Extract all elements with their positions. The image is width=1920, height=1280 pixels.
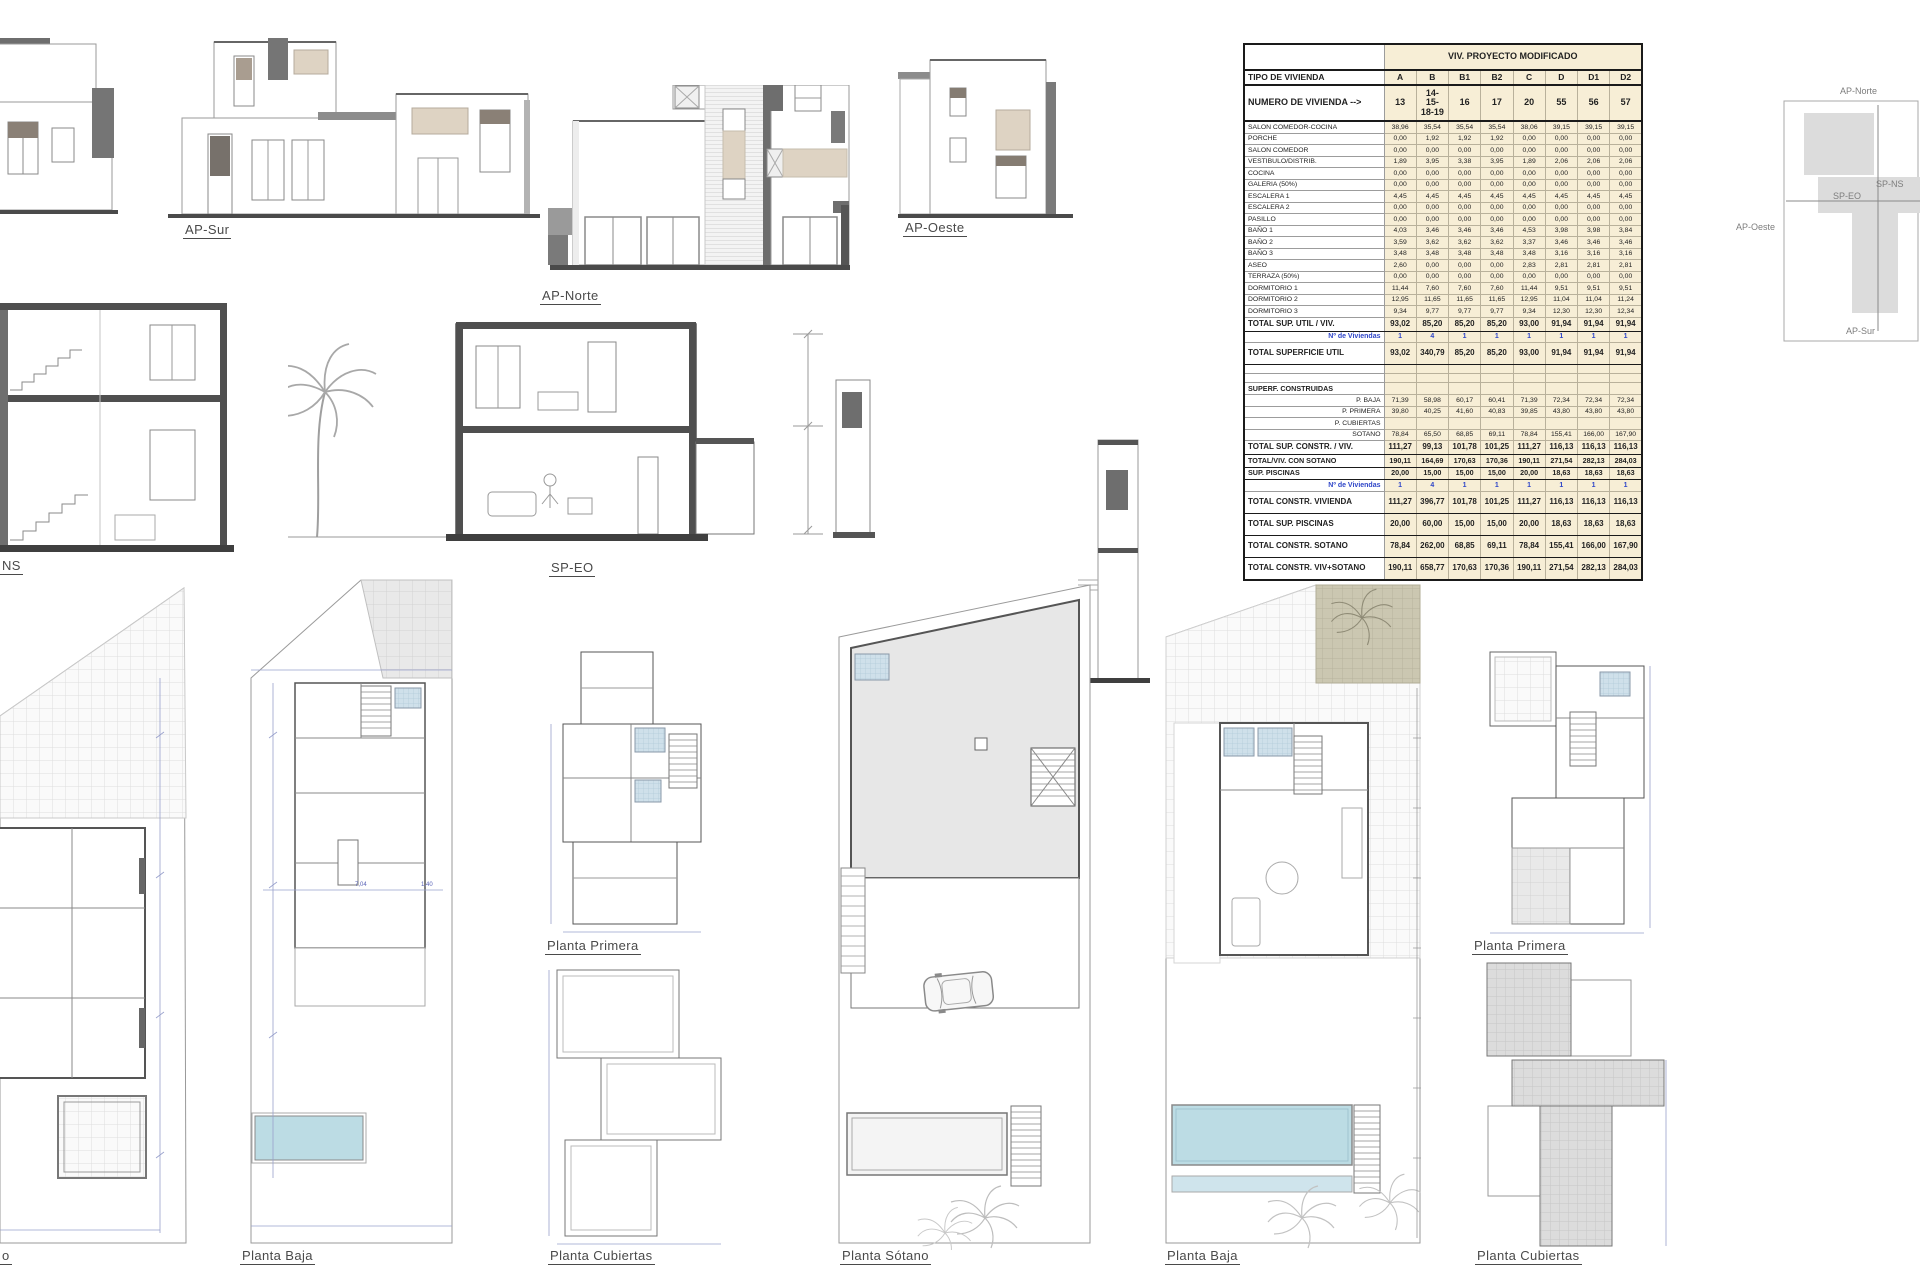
cell-value: 0,00 bbox=[1384, 271, 1416, 283]
cell-value: 3,48 bbox=[1513, 248, 1545, 260]
plan-planta-baja-left-drawing: 7,04 1,40 bbox=[243, 578, 458, 1250]
cell-value: 65,50 bbox=[1416, 429, 1448, 441]
stair bbox=[669, 734, 697, 788]
cell-value: 101,25 bbox=[1481, 491, 1513, 513]
cell-value: 3,16 bbox=[1578, 248, 1610, 260]
cell-value: 0,00 bbox=[1416, 260, 1448, 272]
plan-planta-cubiertas-right-drawing bbox=[1478, 960, 1670, 1248]
cell-value: 170,63 bbox=[1449, 557, 1481, 580]
row-label: TOTAL/VIV. CON SOTANO bbox=[1244, 455, 1384, 468]
cell-value: 4,45 bbox=[1545, 191, 1577, 203]
plan-planta-baja-right-label: Planta Baja bbox=[1165, 1248, 1240, 1265]
cell-value: 35,54 bbox=[1481, 121, 1513, 133]
cell-value bbox=[1610, 383, 1642, 395]
cell-value: 72,34 bbox=[1545, 395, 1577, 407]
table-row: PORCHE0,001,921,921,920,000,000,000,00 bbox=[1244, 133, 1642, 145]
cell-value bbox=[1610, 374, 1642, 383]
cell-value: 167,90 bbox=[1610, 429, 1642, 441]
cell-value: 9,77 bbox=[1449, 306, 1481, 318]
cell-value: 284,03 bbox=[1610, 557, 1642, 580]
cell-value: 3,48 bbox=[1481, 248, 1513, 260]
row-label: TOTAL SUP. PISCINAS bbox=[1244, 513, 1384, 535]
cell-value: 4 bbox=[1416, 331, 1448, 343]
cell-value bbox=[1513, 374, 1545, 383]
cell-value: 0,00 bbox=[1481, 271, 1513, 283]
cell-value: 93,02 bbox=[1384, 343, 1416, 365]
bathroom bbox=[1258, 728, 1292, 756]
cell-value: 0,00 bbox=[1384, 168, 1416, 180]
table-row: TOTAL SUP. UTIL / VIV.93,0285,2085,2085,… bbox=[1244, 317, 1642, 331]
cell-value: 18,63 bbox=[1545, 513, 1577, 535]
cell-value: 72,34 bbox=[1610, 395, 1642, 407]
plan-partial-left-drawing bbox=[0, 578, 192, 1250]
cell-value: 0,00 bbox=[1416, 214, 1448, 226]
cell-value: 1 bbox=[1513, 480, 1545, 492]
kitchen-island bbox=[338, 840, 358, 885]
ramp bbox=[841, 868, 865, 973]
cell-value: 0,00 bbox=[1449, 214, 1481, 226]
cell-value: 2,81 bbox=[1578, 260, 1610, 272]
cell-value: 111,27 bbox=[1513, 441, 1545, 455]
row-label: TOTAL CONSTR. VIVIENDA bbox=[1244, 491, 1384, 513]
section-sp-ns-drawing bbox=[0, 295, 238, 563]
row-label: GALERIA (50%) bbox=[1244, 179, 1384, 191]
cell-value: 85,20 bbox=[1481, 317, 1513, 331]
cell-value: 116,13 bbox=[1610, 491, 1642, 513]
cell-value: 93,02 bbox=[1384, 317, 1416, 331]
cell-value: 4,45 bbox=[1610, 191, 1642, 203]
cell-value: 190,11 bbox=[1513, 455, 1545, 468]
row-label: DORMITORIO 1 bbox=[1244, 283, 1384, 295]
cell-value: 0,00 bbox=[1545, 202, 1577, 214]
row-label: P. PRIMERA bbox=[1244, 406, 1384, 418]
cell-value: 340,79 bbox=[1416, 343, 1448, 365]
table-row: Nº de Viviendas14111111 bbox=[1244, 480, 1642, 492]
cell-value: 658,77 bbox=[1416, 557, 1448, 580]
cell-value: C bbox=[1513, 70, 1545, 85]
cell-value bbox=[1545, 418, 1577, 430]
plan-planta-sotano-drawing bbox=[835, 578, 1097, 1250]
cell-value: 116,13 bbox=[1545, 491, 1577, 513]
cell-value: 78,84 bbox=[1384, 429, 1416, 441]
cell-value: 111,27 bbox=[1513, 491, 1545, 513]
stair bbox=[1354, 1105, 1380, 1193]
cell-value: 0,00 bbox=[1513, 145, 1545, 157]
cell-value bbox=[1481, 383, 1513, 395]
cell-value: 0,00 bbox=[1384, 202, 1416, 214]
cell-value: 3,62 bbox=[1416, 237, 1448, 249]
cell-value: 1 bbox=[1481, 331, 1513, 343]
cell-value: 116,13 bbox=[1578, 491, 1610, 513]
cell-value bbox=[1481, 418, 1513, 430]
cell-value: 69,11 bbox=[1481, 535, 1513, 557]
row-label: TOTAL SUP. UTIL / VIV. bbox=[1244, 317, 1384, 331]
elevation-partial-left-drawing bbox=[0, 38, 140, 216]
cell-value: 3,95 bbox=[1481, 156, 1513, 168]
cell-value: 0,00 bbox=[1384, 133, 1416, 145]
row-label: COCINA bbox=[1244, 168, 1384, 180]
cell-value: 99,13 bbox=[1416, 441, 1448, 455]
cell-value: 1 bbox=[1578, 331, 1610, 343]
cell-value: 91,94 bbox=[1610, 317, 1642, 331]
cell-value: 3,95 bbox=[1416, 156, 1448, 168]
cell-value: 15,00 bbox=[1449, 513, 1481, 535]
cell-value: 39,15 bbox=[1545, 121, 1577, 133]
row-label: BAÑO 1 bbox=[1244, 225, 1384, 237]
dimension-line bbox=[793, 330, 823, 534]
cell-value: 12,34 bbox=[1610, 306, 1642, 318]
table-row: TOTAL CONSTR. VIV+SOTANO190,11658,77170,… bbox=[1244, 557, 1642, 580]
table-title: VIV. PROYECTO MODIFICADO bbox=[1384, 44, 1642, 70]
bathroom bbox=[1224, 728, 1254, 756]
cell-value: 55 bbox=[1545, 85, 1577, 121]
table-row: COCINA0,000,000,000,000,000,000,000,00 bbox=[1244, 168, 1642, 180]
summary-table: VIV. PROYECTO MODIFICADOTIPO DE VIVIENDA… bbox=[1243, 43, 1643, 581]
stair bbox=[1011, 1106, 1041, 1186]
cell-value: 60,41 bbox=[1481, 395, 1513, 407]
row-label: BAÑO 3 bbox=[1244, 248, 1384, 260]
cell-value: 0,00 bbox=[1578, 145, 1610, 157]
table-row bbox=[1244, 374, 1642, 383]
table-row: SUP. PISCINAS20,0015,0015,0015,0020,0018… bbox=[1244, 467, 1642, 480]
cell-value: 7,60 bbox=[1416, 283, 1448, 295]
section-sp-eo-drawing bbox=[288, 322, 888, 564]
cell-value: 35,54 bbox=[1449, 121, 1481, 133]
cell-value: 39,85 bbox=[1513, 406, 1545, 418]
cell-value: 1 bbox=[1449, 480, 1481, 492]
table-row: TOTAL SUPERFICIE UTIL93,02340,7985,2085,… bbox=[1244, 343, 1642, 365]
plan-planta-primera-left-drawing bbox=[543, 648, 721, 938]
table-row: TOTAL/VIV. CON SOTANO190,11164,69170,631… bbox=[1244, 455, 1642, 468]
table-row: TIPO DE VIVIENDAABB1B2CDD1D2 bbox=[1244, 70, 1642, 85]
table-row: SALON COMEDOR0,000,000,000,000,000,000,0… bbox=[1244, 145, 1642, 157]
cell-value: 164,69 bbox=[1416, 455, 1448, 468]
table-row: VIV. PROYECTO MODIFICADO bbox=[1244, 44, 1642, 70]
cell-value: 7,60 bbox=[1481, 283, 1513, 295]
cell-value: 111,27 bbox=[1384, 491, 1416, 513]
cell-value: 68,85 bbox=[1449, 429, 1481, 441]
cell-value: 4,45 bbox=[1578, 191, 1610, 203]
cell-value: 0,00 bbox=[1481, 202, 1513, 214]
cell-value bbox=[1416, 374, 1448, 383]
table-row bbox=[1244, 365, 1642, 374]
key-plan-south-label: AP-Sur bbox=[1846, 326, 1875, 336]
cell-value: 0,00 bbox=[1481, 145, 1513, 157]
cell-value: 20,00 bbox=[1384, 467, 1416, 480]
cell-value: D2 bbox=[1610, 70, 1642, 85]
cell-value: 3,84 bbox=[1610, 225, 1642, 237]
table-row: TOTAL SUP. PISCINAS20,0060,0015,0015,002… bbox=[1244, 513, 1642, 535]
section-sp-eo-label: SP-EO bbox=[549, 560, 595, 577]
cell-value bbox=[1578, 418, 1610, 430]
cell-value: 1 bbox=[1384, 331, 1416, 343]
cell-value: 20 bbox=[1513, 85, 1545, 121]
cell-value: D1 bbox=[1578, 70, 1610, 85]
plan-planta-cubiertas-left-drawing bbox=[543, 960, 733, 1248]
cell-value: 17 bbox=[1481, 85, 1513, 121]
cell-value: 18,63 bbox=[1610, 467, 1642, 480]
cell-value: 4,03 bbox=[1384, 225, 1416, 237]
stair bbox=[1570, 712, 1596, 766]
garden-area bbox=[1316, 585, 1420, 683]
cell-value: 3,48 bbox=[1384, 248, 1416, 260]
row-label: ESCALERA 1 bbox=[1244, 191, 1384, 203]
row-label bbox=[1244, 374, 1384, 383]
row-label: TOTAL CONSTR. SOTANO bbox=[1244, 535, 1384, 557]
cell-value: 284,03 bbox=[1610, 455, 1642, 468]
cell-value: 0,00 bbox=[1513, 214, 1545, 226]
table-row: SOTANO78,8465,5068,8569,1178,84155,41166… bbox=[1244, 429, 1642, 441]
cell-value: 3,62 bbox=[1481, 237, 1513, 249]
row-label: VESTIBULO/DISTRIB. bbox=[1244, 156, 1384, 168]
cell-value bbox=[1578, 383, 1610, 395]
drawing-sheet: AP-Sur AP-Norte bbox=[0, 0, 1920, 1280]
cell-value: 43,80 bbox=[1610, 406, 1642, 418]
table-row: TOTAL CONSTR. VIVIENDA111,27396,77101,78… bbox=[1244, 491, 1642, 513]
cell-value: 0,00 bbox=[1449, 260, 1481, 272]
table-row: NUMERO DE VIVIENDA -->1314-15-18-1916172… bbox=[1244, 85, 1642, 121]
cell-value: 71,39 bbox=[1384, 395, 1416, 407]
key-plan-section-eo-label: SP-EO bbox=[1833, 191, 1861, 201]
cell-value: 40,83 bbox=[1481, 406, 1513, 418]
cell-value: 0,00 bbox=[1578, 271, 1610, 283]
cell-value: 3,62 bbox=[1449, 237, 1481, 249]
row-label: BAÑO 2 bbox=[1244, 237, 1384, 249]
cell-value: 2,60 bbox=[1384, 260, 1416, 272]
cell-value: 15,00 bbox=[1481, 513, 1513, 535]
cell-value: 4,45 bbox=[1513, 191, 1545, 203]
cell-value: 18,63 bbox=[1610, 513, 1642, 535]
table-row: VESTIBULO/DISTRIB.1,893,953,383,951,892,… bbox=[1244, 156, 1642, 168]
row-label: PASILLO bbox=[1244, 214, 1384, 226]
cell-value: 101,78 bbox=[1449, 441, 1481, 455]
row-label bbox=[1244, 44, 1384, 70]
cell-value: 0,00 bbox=[1513, 168, 1545, 180]
cell-value: 1 bbox=[1610, 331, 1642, 343]
pool bbox=[58, 1096, 146, 1178]
cell-value: 9,51 bbox=[1578, 283, 1610, 295]
cell-value: 43,80 bbox=[1578, 406, 1610, 418]
cell-value: 0,00 bbox=[1578, 214, 1610, 226]
stair bbox=[1031, 748, 1075, 806]
row-label: PORCHE bbox=[1244, 133, 1384, 145]
cell-value: 15,00 bbox=[1481, 467, 1513, 480]
cell-value: 0,00 bbox=[1384, 179, 1416, 191]
cell-value: 2,06 bbox=[1545, 156, 1577, 168]
row-label: NUMERO DE VIVIENDA --> bbox=[1244, 85, 1384, 121]
table-row: SALON COMEDOR-COCINA38,9635,5435,5435,54… bbox=[1244, 121, 1642, 133]
cell-value: 3,46 bbox=[1545, 237, 1577, 249]
cell-value: 91,94 bbox=[1545, 317, 1577, 331]
cell-value: 0,00 bbox=[1416, 168, 1448, 180]
row-label: P. CUBIERTAS bbox=[1244, 418, 1384, 430]
cell-value: 43,80 bbox=[1545, 406, 1577, 418]
pool bbox=[847, 1113, 1007, 1175]
cell-value: 190,11 bbox=[1513, 557, 1545, 580]
cell-value: 0,00 bbox=[1384, 145, 1416, 157]
table-row: BAÑO 23,593,623,623,623,373,463,463,46 bbox=[1244, 237, 1642, 249]
cell-value: 0,00 bbox=[1481, 214, 1513, 226]
cell-value: 91,94 bbox=[1578, 317, 1610, 331]
table-row: TERRAZA (50%)0,000,000,000,000,000,000,0… bbox=[1244, 271, 1642, 283]
cell-value: 282,13 bbox=[1578, 557, 1610, 580]
cell-value: 11,65 bbox=[1416, 294, 1448, 306]
cell-value: D bbox=[1545, 70, 1577, 85]
cell-value: 0,00 bbox=[1610, 145, 1642, 157]
cell-value: 3,46 bbox=[1449, 225, 1481, 237]
cell-value: 69,11 bbox=[1481, 429, 1513, 441]
elevation-ap-sur-drawing bbox=[168, 38, 540, 223]
plan-planta-cubiertas-left-label: Planta Cubiertas bbox=[548, 1248, 655, 1265]
cell-value bbox=[1449, 374, 1481, 383]
cell-value: 91,94 bbox=[1610, 343, 1642, 365]
cell-value: 0,00 bbox=[1449, 271, 1481, 283]
plan-planta-sotano-label: Planta Sótano bbox=[840, 1248, 931, 1265]
plan-planta-baja-right-drawing bbox=[1162, 578, 1427, 1250]
table-row: P. PRIMERA39,8040,2541,6040,8339,8543,80… bbox=[1244, 406, 1642, 418]
cell-value bbox=[1610, 365, 1642, 374]
bathroom bbox=[395, 688, 421, 708]
cell-value bbox=[1481, 365, 1513, 374]
cell-value: 0,00 bbox=[1578, 133, 1610, 145]
cell-value: 13 bbox=[1384, 85, 1416, 121]
cell-value: 101,25 bbox=[1481, 441, 1513, 455]
row-label: SALON COMEDOR bbox=[1244, 145, 1384, 157]
cell-value: 0,00 bbox=[1513, 133, 1545, 145]
cell-value bbox=[1449, 365, 1481, 374]
cell-value: 11,65 bbox=[1449, 294, 1481, 306]
cell-value: 39,15 bbox=[1610, 121, 1642, 133]
cell-value: 116,13 bbox=[1545, 441, 1577, 455]
cell-value: 15,00 bbox=[1416, 467, 1448, 480]
cell-value: 9,34 bbox=[1384, 306, 1416, 318]
cell-value: 101,78 bbox=[1449, 491, 1481, 513]
row-label: TOTAL CONSTR. VIV+SOTANO bbox=[1244, 557, 1384, 580]
cell-value: 91,94 bbox=[1578, 343, 1610, 365]
roof-panel bbox=[1540, 1106, 1612, 1246]
cell-value: 0,00 bbox=[1416, 145, 1448, 157]
plan-planta-primera-left-label: Planta Primera bbox=[545, 938, 641, 955]
cell-value: 3,59 bbox=[1384, 237, 1416, 249]
cell-value: 190,11 bbox=[1384, 557, 1416, 580]
cell-value bbox=[1384, 383, 1416, 395]
key-plan-west-label: AP-Oeste bbox=[1736, 222, 1775, 232]
cell-value: 3,46 bbox=[1416, 225, 1448, 237]
pool-step bbox=[1172, 1176, 1352, 1192]
cell-value: 1,92 bbox=[1416, 133, 1448, 145]
cell-value: 282,13 bbox=[1578, 455, 1610, 468]
elevation-ap-norte-label: AP-Norte bbox=[540, 288, 601, 305]
cell-value: 3,46 bbox=[1481, 225, 1513, 237]
cell-value: 20,00 bbox=[1513, 513, 1545, 535]
cell-value: 155,41 bbox=[1545, 535, 1577, 557]
cell-value: 85,20 bbox=[1416, 317, 1448, 331]
row-label: P. BAJA bbox=[1244, 395, 1384, 407]
cell-value: 72,34 bbox=[1578, 395, 1610, 407]
cell-value: 3,98 bbox=[1545, 225, 1577, 237]
cell-value: 38,96 bbox=[1384, 121, 1416, 133]
cell-value: 0,00 bbox=[1578, 202, 1610, 214]
cell-value: 0,00 bbox=[1545, 168, 1577, 180]
cell-value: 58,98 bbox=[1416, 395, 1448, 407]
cell-value: 12,95 bbox=[1513, 294, 1545, 306]
cell-value: 0,00 bbox=[1449, 179, 1481, 191]
cell-value: 9,77 bbox=[1481, 306, 1513, 318]
cell-value: 170,63 bbox=[1449, 455, 1481, 468]
cell-value: 116,13 bbox=[1578, 441, 1610, 455]
bathroom bbox=[1600, 672, 1630, 696]
table-row: P. BAJA71,3958,9860,1760,4171,3972,3472,… bbox=[1244, 395, 1642, 407]
cell-value: 0,00 bbox=[1513, 179, 1545, 191]
cell-value: 85,20 bbox=[1481, 343, 1513, 365]
cell-value: 4,45 bbox=[1416, 191, 1448, 203]
cell-value: 1,89 bbox=[1384, 156, 1416, 168]
cell-value: 93,00 bbox=[1513, 317, 1545, 331]
row-label: SOTANO bbox=[1244, 429, 1384, 441]
cell-value: 78,84 bbox=[1513, 429, 1545, 441]
terrace bbox=[1512, 848, 1570, 924]
cell-value: 39,80 bbox=[1384, 406, 1416, 418]
cell-value bbox=[1416, 383, 1448, 395]
cell-value: 0,00 bbox=[1610, 271, 1642, 283]
stair bbox=[361, 686, 391, 736]
row-label: TOTAL SUP. CONSTR. / VIV. bbox=[1244, 441, 1384, 455]
table-row: TOTAL SUP. CONSTR. / VIV.111,2799,13101,… bbox=[1244, 441, 1642, 455]
cell-value bbox=[1416, 418, 1448, 430]
cell-value bbox=[1449, 418, 1481, 430]
cell-value: 3,16 bbox=[1610, 248, 1642, 260]
cell-value bbox=[1545, 374, 1577, 383]
table-row: SUPERF. CONSTRUIDAS bbox=[1244, 383, 1642, 395]
table-row: DORMITORIO 111,447,607,607,6011,449,519,… bbox=[1244, 283, 1642, 295]
cell-value: 20,00 bbox=[1513, 467, 1545, 480]
cell-value bbox=[1384, 365, 1416, 374]
table-row: P. CUBIERTAS bbox=[1244, 418, 1642, 430]
cell-value: 3,48 bbox=[1449, 248, 1481, 260]
basement-floor bbox=[851, 600, 1079, 878]
table-row: GALERIA (50%)0,000,000,000,000,000,000,0… bbox=[1244, 179, 1642, 191]
section-sp-ns-label: NS bbox=[0, 558, 23, 575]
cell-value: 262,00 bbox=[1416, 535, 1448, 557]
cell-value: 0,00 bbox=[1416, 202, 1448, 214]
cell-value: 11,65 bbox=[1481, 294, 1513, 306]
pool bbox=[255, 1116, 363, 1160]
cell-value: 190,11 bbox=[1384, 455, 1416, 468]
cell-value: 111,27 bbox=[1384, 441, 1416, 455]
cell-value: 0,00 bbox=[1513, 202, 1545, 214]
cell-value: 18,63 bbox=[1578, 467, 1610, 480]
cell-value: 1 bbox=[1610, 480, 1642, 492]
cell-value: 0,00 bbox=[1545, 179, 1577, 191]
table-row: Nº de Viviendas14111111 bbox=[1244, 331, 1642, 343]
row-label: SALON COMEDOR-COCINA bbox=[1244, 121, 1384, 133]
cell-value: 2,06 bbox=[1610, 156, 1642, 168]
cell-value: 3,16 bbox=[1545, 248, 1577, 260]
dimension-text: 7,04 bbox=[355, 882, 367, 888]
table-row: DORMITORIO 212,9511,6511,6511,6512,9511,… bbox=[1244, 294, 1642, 306]
cell-value bbox=[1416, 365, 1448, 374]
cell-value: 20,00 bbox=[1384, 513, 1416, 535]
plan-planta-primera-right-label: Planta Primera bbox=[1472, 938, 1568, 955]
palm-tree-icon bbox=[288, 344, 376, 537]
cell-value: 0,00 bbox=[1449, 145, 1481, 157]
cell-value: A bbox=[1384, 70, 1416, 85]
bathroom bbox=[635, 728, 665, 752]
cell-value bbox=[1545, 365, 1577, 374]
cell-value: 57 bbox=[1610, 85, 1642, 121]
cell-value: 0,00 bbox=[1610, 179, 1642, 191]
row-label: Nº de Viviendas bbox=[1244, 480, 1384, 492]
